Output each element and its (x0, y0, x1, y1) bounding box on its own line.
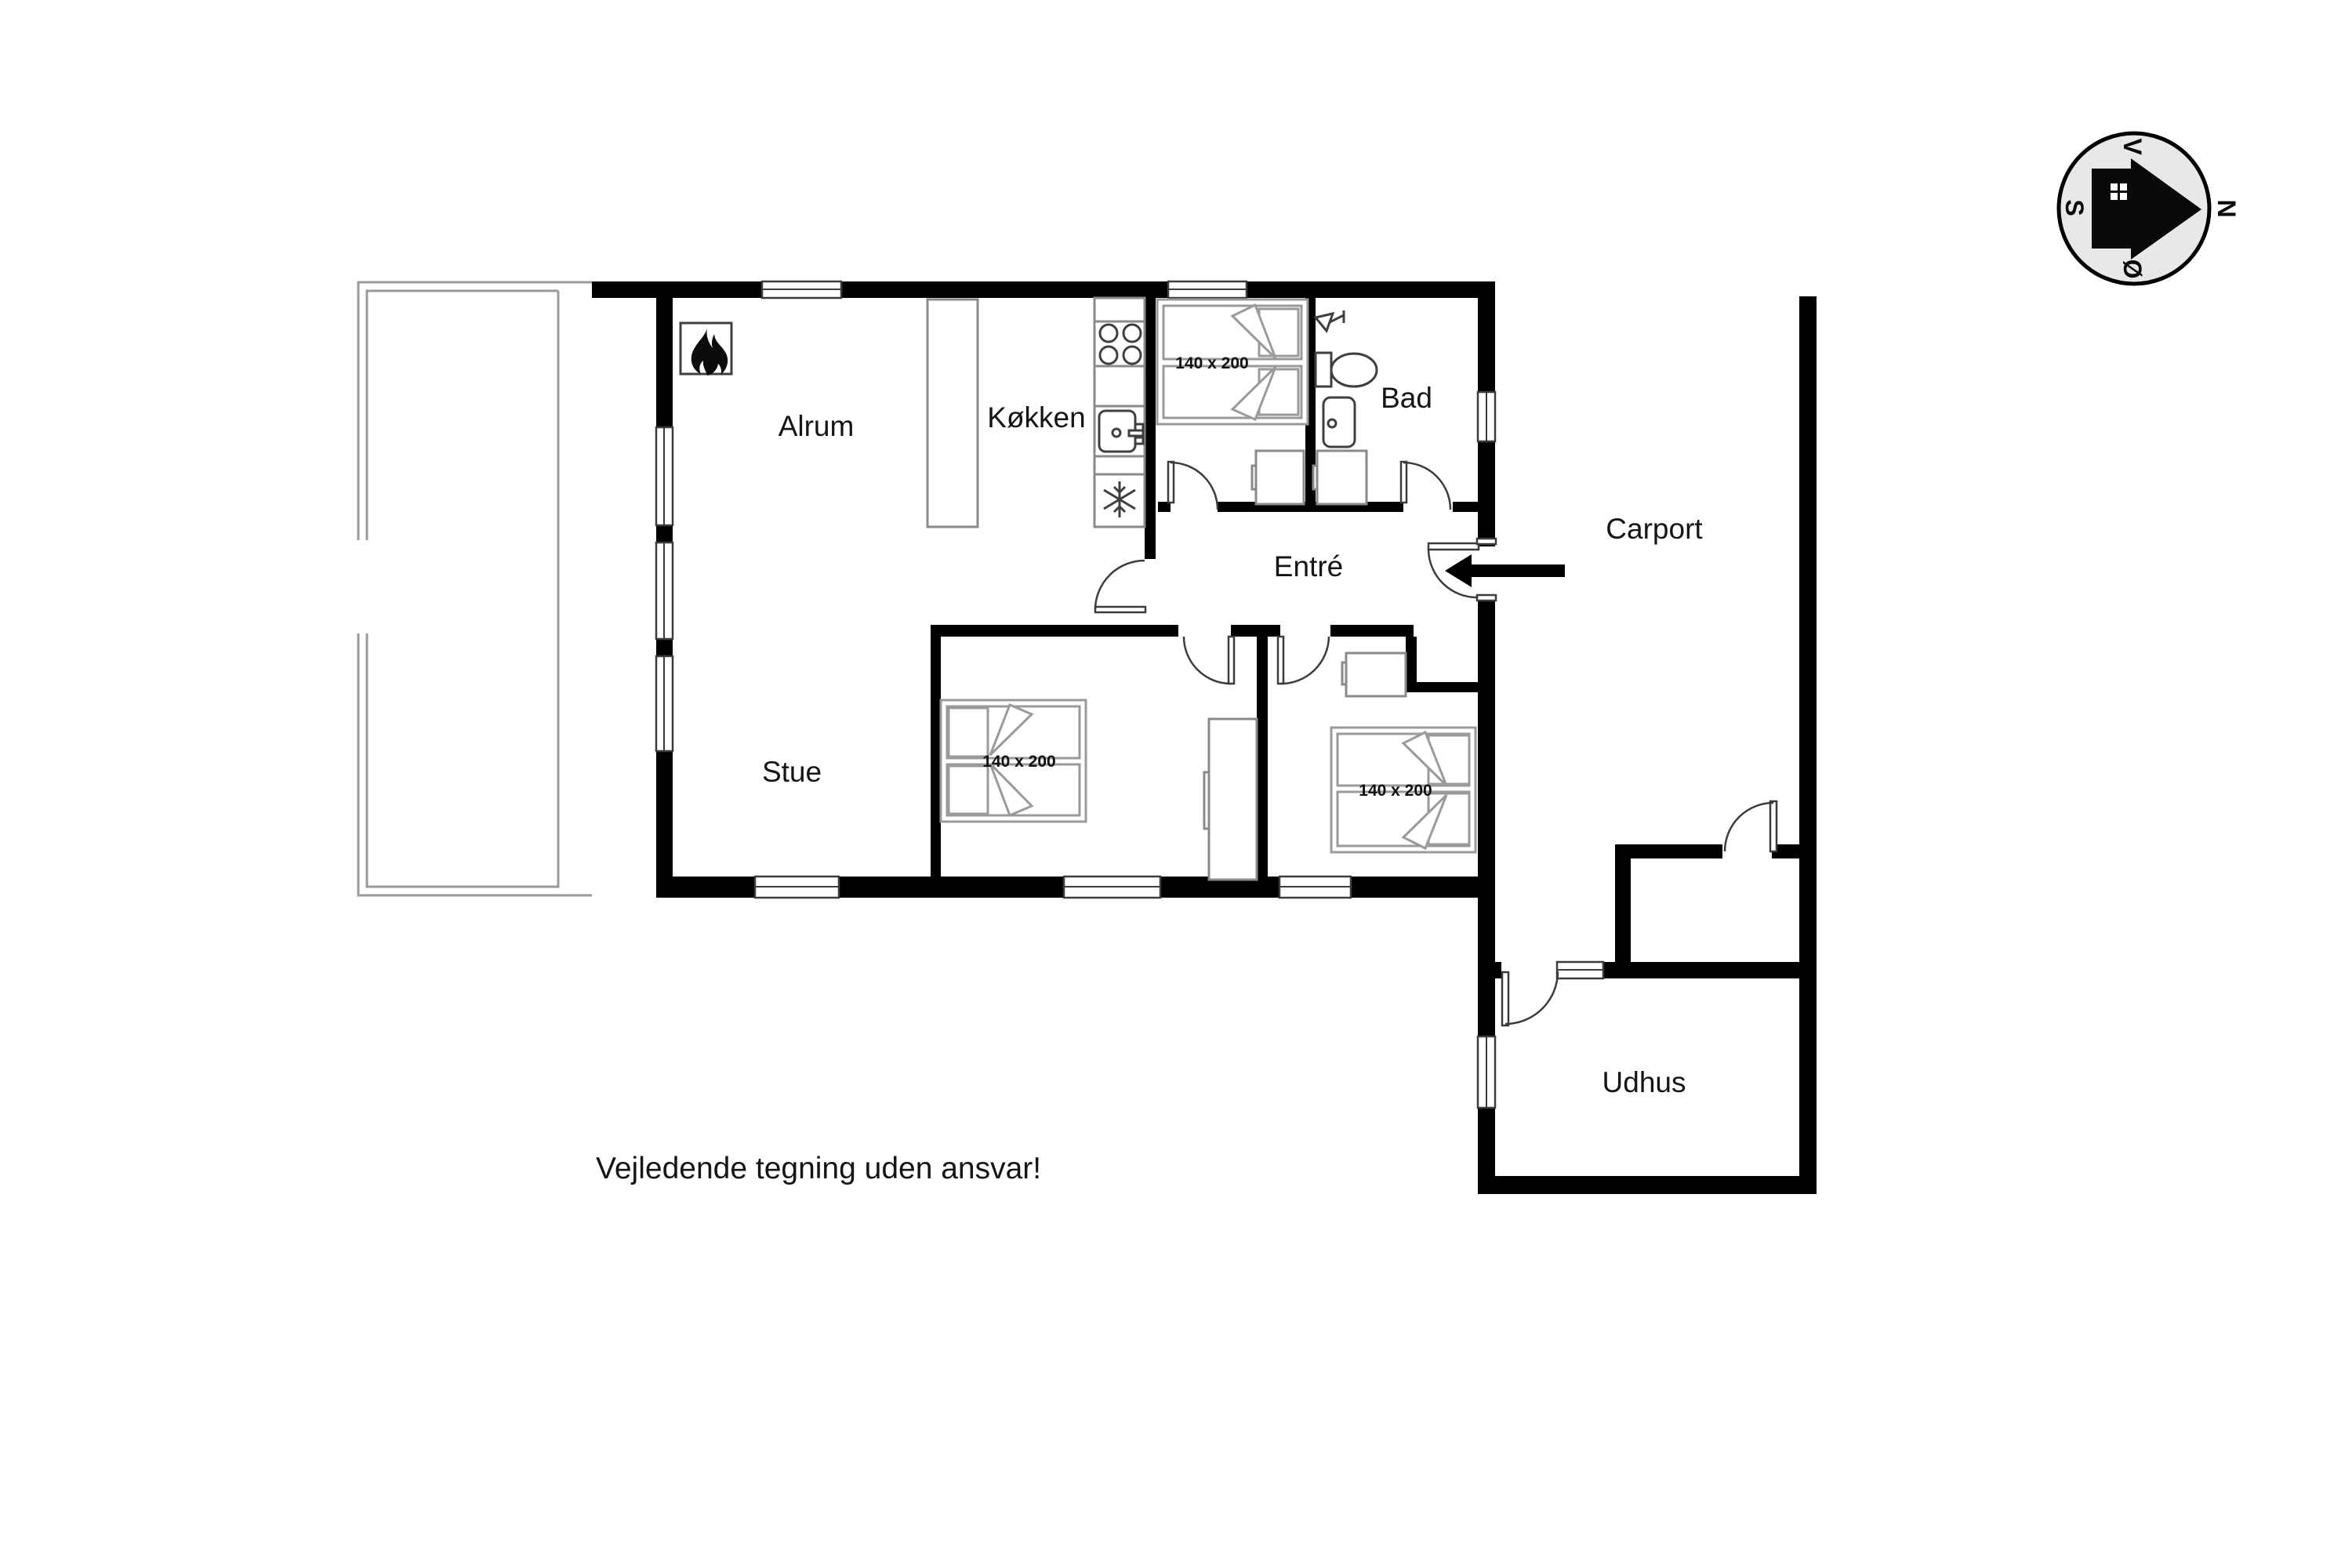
window-east-udhus (1478, 1036, 1495, 1108)
room-label-bad: Bad (1381, 382, 1432, 414)
terrace-deck (353, 282, 592, 895)
fireplace (681, 323, 731, 376)
window-west-1 (656, 427, 673, 525)
compass-south-label: S (2060, 199, 2089, 216)
window-west-3 (656, 656, 673, 751)
door-alrum-entre (1095, 561, 1145, 612)
door-bedroom-right (1278, 637, 1329, 684)
window-top-alrum (762, 281, 841, 298)
wardrobe-bedroom-mid (1204, 719, 1257, 880)
entrance-arrow-icon (1445, 554, 1565, 587)
room-label-alrum: Alrum (779, 410, 855, 442)
door-bedroom-top (1168, 462, 1218, 510)
bath-cabinet (1313, 451, 1367, 504)
wardrobe-bedroom-top (1252, 451, 1304, 504)
room-label-stue: Stue (762, 756, 822, 788)
pillow (949, 766, 988, 814)
toilet-icon (1316, 353, 1377, 387)
bed-size-label-right: 140 x 200 (1359, 782, 1432, 800)
door-bedroom-mid (1184, 637, 1234, 684)
door-bad (1401, 462, 1450, 510)
room-label-udhus: Udhus (1602, 1066, 1686, 1098)
floorplan-page: V S Ø N Alrum Køkken Bad Entré Stue Carp… (0, 0, 2352, 1568)
terrace-opening (353, 540, 372, 633)
bathroom-fixtures (1313, 310, 1377, 504)
room-label-kokken: Køkken (987, 401, 1085, 434)
door-udhus (1502, 971, 1558, 1025)
compass-rose-icon: V S Ø N (2059, 133, 2241, 284)
outbuilding-walls (1478, 296, 1817, 1194)
bath-sink-icon (1323, 397, 1355, 447)
window-south-stue (755, 877, 839, 898)
compass-north-label: N (2212, 199, 2241, 217)
pillow (949, 708, 988, 757)
window-south-bedroom-right (1279, 877, 1351, 898)
shower-icon (1316, 310, 1344, 331)
window-south-bedroom-mid (1064, 877, 1160, 898)
kitchen-island (927, 299, 978, 527)
bed-size-label-top: 140 x 200 (1175, 354, 1248, 372)
room-label-carport: Carport (1606, 513, 1703, 545)
compass-west-label: V (2118, 138, 2147, 155)
door-carport-corridor (1725, 801, 1777, 851)
floorplan-drawing: V S Ø N Alrum Køkken Bad Entré Stue Carp… (0, 0, 2352, 1568)
window-west-2 (656, 543, 673, 639)
room-label-entre: Entré (1274, 550, 1343, 583)
bed-size-label-mid: 140 x 200 (982, 753, 1055, 771)
compass-east-label: Ø (2118, 260, 2147, 279)
window-udhus-top (1557, 962, 1603, 978)
window-east-bad (1478, 392, 1495, 441)
disclaimer-text: Vejledende tegning uden ansvar! (596, 1152, 1041, 1185)
window-top-bedroom (1168, 281, 1247, 298)
wardrobe-bedroom-right (1342, 653, 1406, 696)
